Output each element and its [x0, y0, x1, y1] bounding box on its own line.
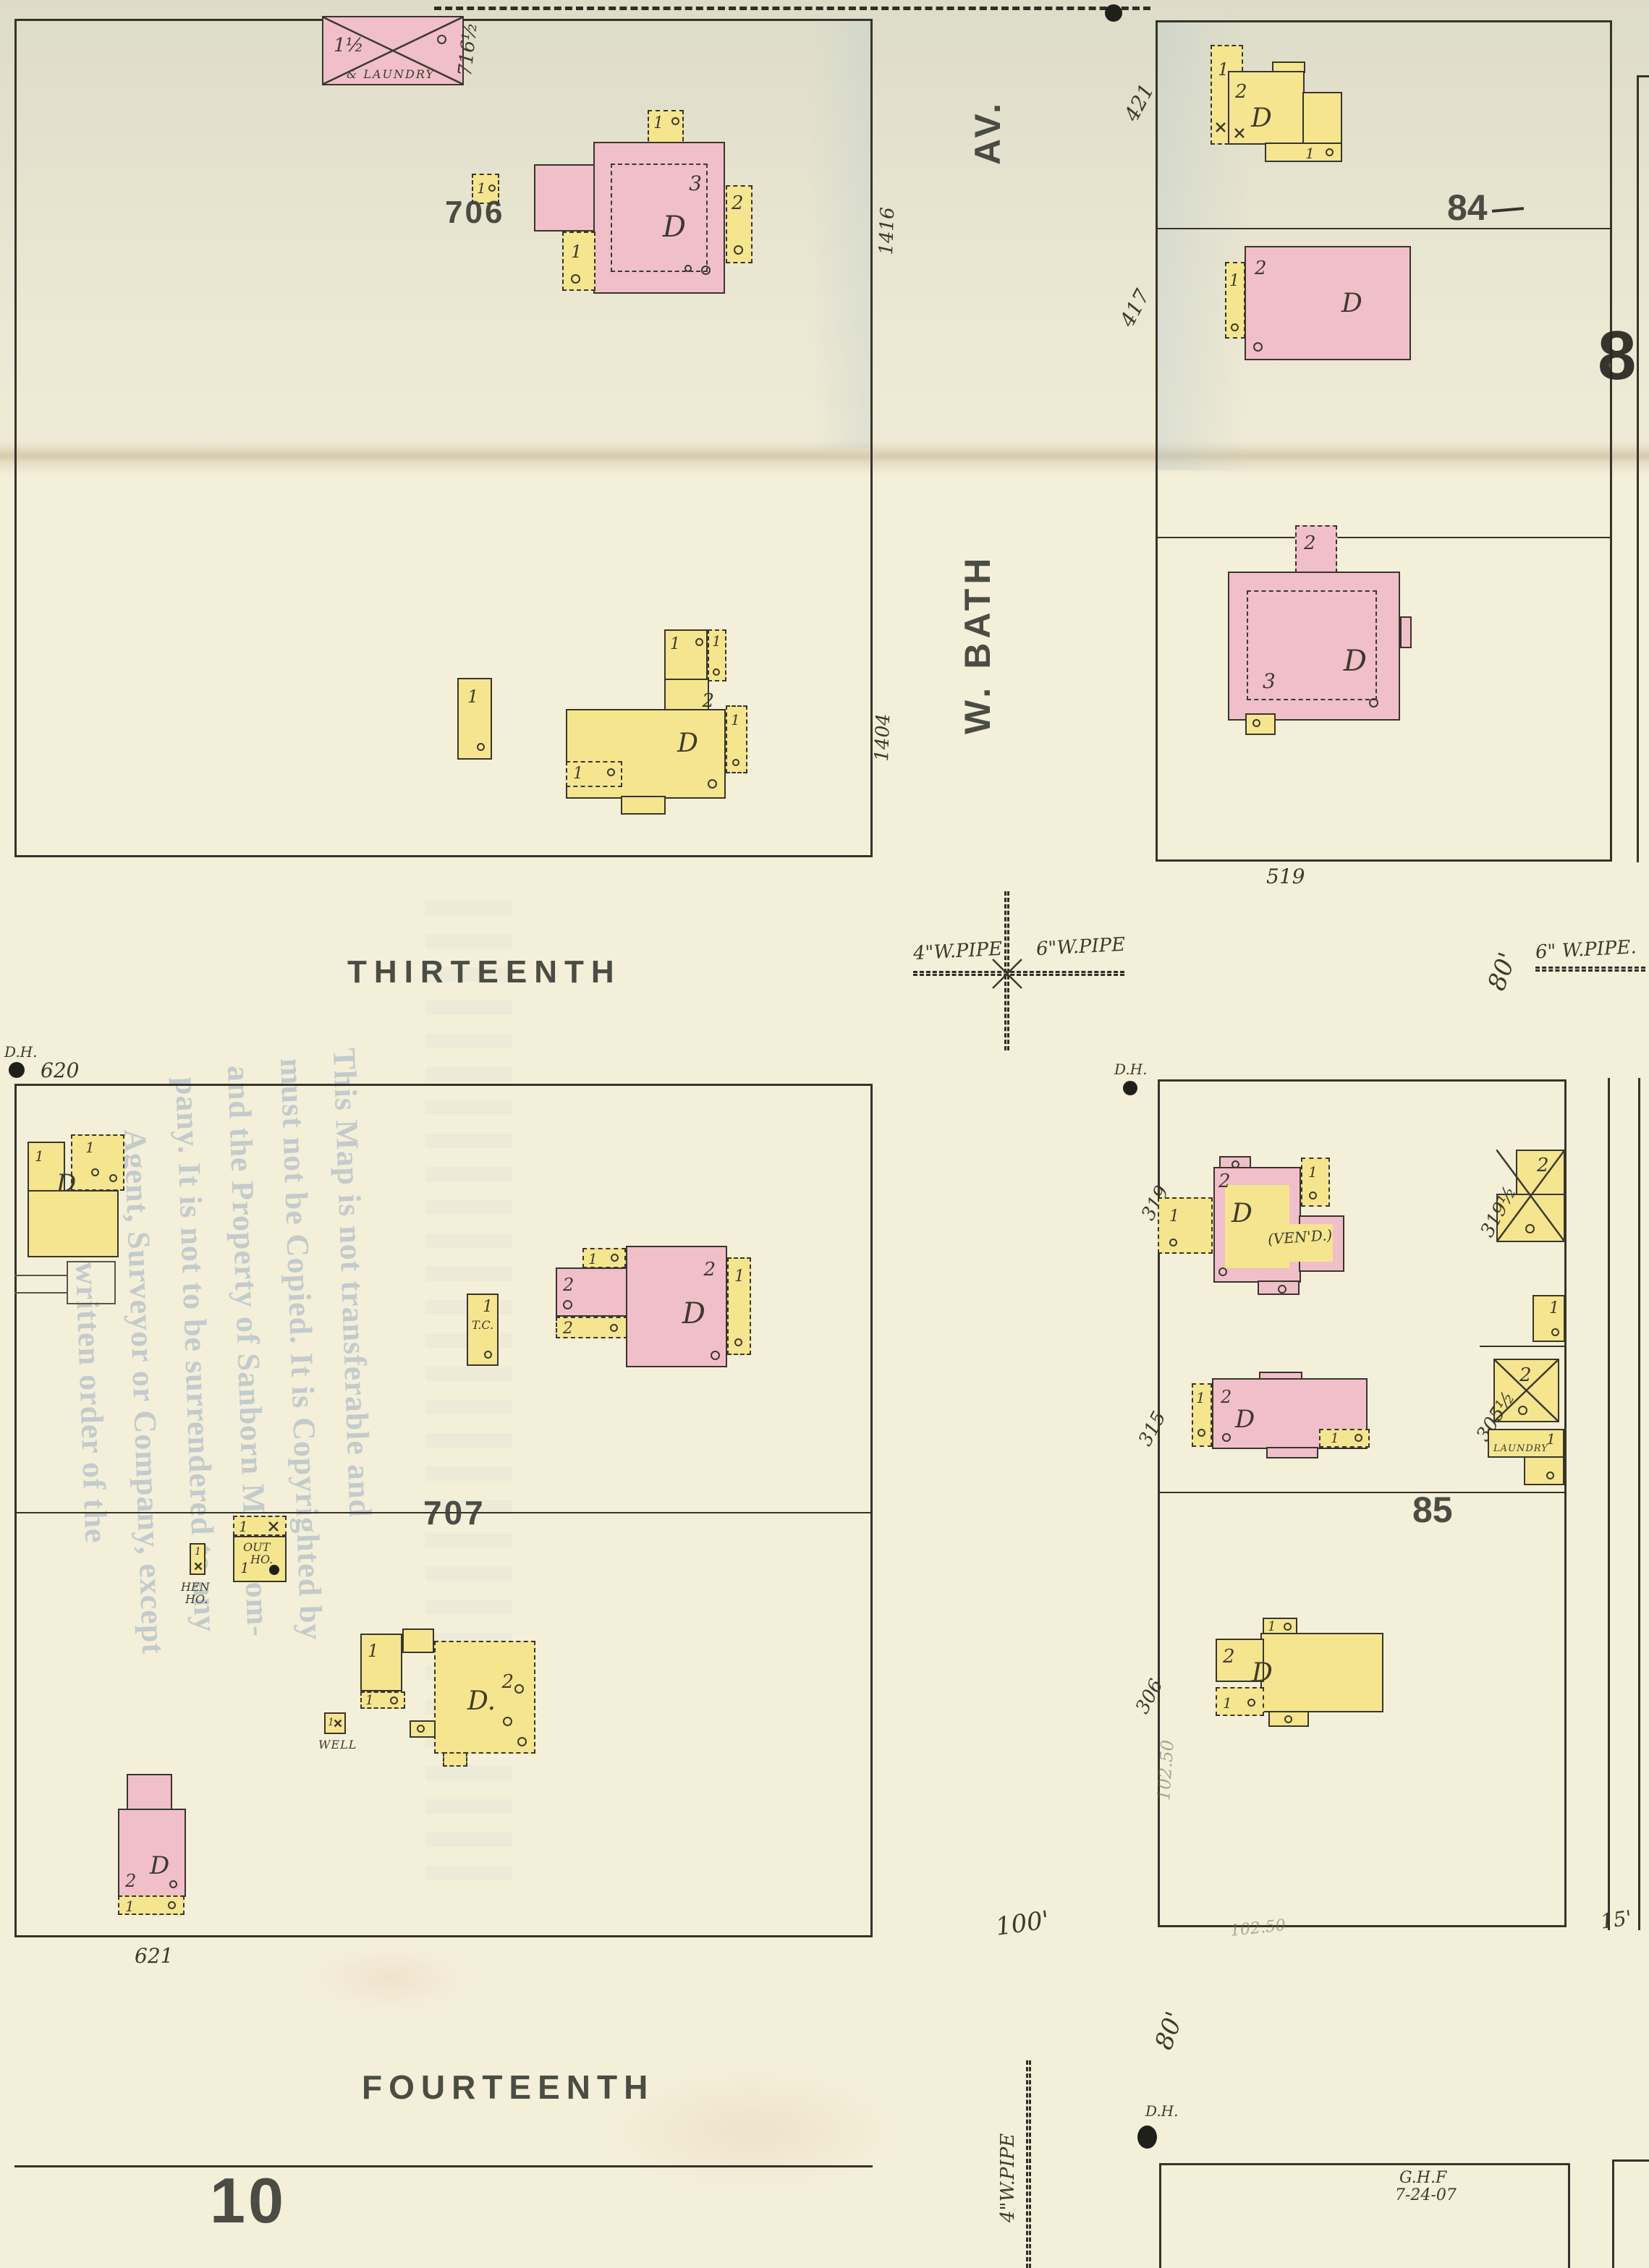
window-circle-icon	[711, 1351, 720, 1360]
house-number: 716½	[456, 17, 480, 77]
porch	[443, 1752, 467, 1767]
window-circle-icon	[610, 1324, 618, 1332]
dwelling-label: D.	[467, 1689, 496, 1715]
window-circle-icon	[1355, 1434, 1362, 1442]
window-circle-icon	[437, 35, 446, 44]
window-circle-icon	[91, 1168, 99, 1176]
story-label: 2	[1304, 534, 1316, 553]
window-circle-icon	[1197, 1429, 1205, 1437]
dwelling-label: D	[1344, 647, 1367, 676]
sheet-number: 8	[1598, 321, 1636, 391]
x-mark-icon	[1234, 127, 1245, 139]
story-label: 1	[670, 637, 680, 653]
pipe-label: 6"W.PIPE	[1035, 935, 1125, 959]
well-label: WELL	[318, 1739, 357, 1751]
porch: 1	[118, 1895, 185, 1915]
story-label: 1	[1229, 273, 1239, 289]
porch: 1	[566, 761, 622, 787]
dwelling-label: D	[1341, 291, 1362, 317]
dwelling-main: D	[27, 1190, 119, 1257]
datum-hole-label: D.H.	[1114, 1062, 1147, 1076]
story-label: 2	[1255, 259, 1267, 278]
window-circle-icon	[1247, 1699, 1255, 1707]
dwelling-main: 2 D.	[434, 1641, 535, 1754]
story-label: 2	[1519, 1366, 1532, 1385]
window-circle-icon	[1284, 1715, 1292, 1723]
window-circle-icon	[169, 1880, 177, 1888]
dwelling-main: 2 D	[1228, 71, 1305, 145]
adjacent-block-edge	[1638, 1078, 1640, 1930]
story-label: 1	[712, 634, 721, 648]
window-circle-icon	[514, 1684, 524, 1694]
porch: 1	[562, 232, 595, 291]
laundry-85-building: 1 LAUNDRY	[1488, 1429, 1564, 1458]
porch: 1	[708, 629, 726, 681]
window-circle-icon	[1326, 148, 1334, 156]
dwelling-extension	[1266, 1447, 1318, 1458]
porch: 1	[1319, 1429, 1370, 1448]
window-circle-icon	[1546, 1471, 1554, 1479]
story-label: 3	[689, 174, 702, 194]
dwelling-bay	[1400, 616, 1412, 648]
story-label: 1	[571, 243, 582, 260]
porch: 1	[726, 705, 747, 773]
outhouse-porch: 1	[233, 1516, 287, 1536]
story-label: 1	[195, 1547, 201, 1557]
adjacent-block-edge-tick	[1637, 75, 1649, 77]
dwelling-label: D	[1235, 1407, 1255, 1432]
window-circle-icon	[607, 768, 615, 776]
window-circle-icon	[708, 779, 717, 789]
window-circle-icon	[1218, 1267, 1227, 1276]
porch: 1	[1216, 1687, 1264, 1716]
porch	[410, 1720, 436, 1738]
dwelling-main: 3 D	[593, 142, 725, 294]
laundry-85-wing	[1524, 1456, 1564, 1485]
dwelling-extension	[621, 796, 666, 815]
street-label-w-bath: W. BATH	[959, 554, 996, 734]
window-circle-icon	[1222, 1433, 1231, 1442]
porch: 2	[726, 185, 753, 263]
story-label: 1	[483, 1299, 493, 1315]
story-label: 1	[85, 1140, 95, 1155]
bottom-corner-block-tick	[1612, 2159, 1649, 2162]
story-label: 1	[1308, 1165, 1318, 1179]
porch: 1	[1225, 262, 1245, 339]
black-dot-marker	[269, 1565, 279, 1575]
x-mark-icon	[194, 1562, 203, 1571]
adjacent-block-edge	[1608, 1078, 1610, 1930]
bottom-corner-block-edge	[1612, 2159, 1614, 2268]
building-use-label: & LAUNDRY	[347, 69, 435, 80]
porch: 1	[582, 1248, 626, 1268]
porch: 1	[727, 1257, 751, 1355]
dwelling-main: D 3	[1228, 572, 1400, 721]
block-number: 84	[1447, 190, 1488, 226]
story-label: 1	[734, 1269, 745, 1285]
story-label: 1	[125, 1899, 135, 1914]
window-circle-icon	[1551, 1328, 1559, 1336]
porch: 1	[1192, 1383, 1212, 1447]
adjacent-block-edge	[1637, 75, 1639, 862]
window-circle-icon	[417, 1725, 425, 1733]
story-label: 2	[702, 692, 714, 710]
dwelling-wing	[1302, 92, 1342, 145]
dwelling-label: D	[677, 731, 698, 757]
window-circle-icon	[484, 1351, 492, 1359]
dimension-label: 100'	[994, 1908, 1051, 1940]
story-label: 2	[732, 194, 744, 213]
dwelling-tower: 2	[1295, 525, 1337, 573]
dwelling-wing	[534, 164, 602, 232]
dwelling-main: D 2	[118, 1809, 186, 1897]
block-number: 706	[445, 197, 504, 229]
story-label: 1	[573, 766, 583, 782]
dimension-label: 15'	[1599, 1908, 1633, 1932]
story-label: 2	[563, 1321, 573, 1337]
block-10-outline	[14, 2165, 873, 2167]
story-label: 1	[1218, 61, 1229, 78]
dimension-label: 80'	[1151, 2008, 1187, 2052]
datum-hole-dot	[1105, 4, 1122, 22]
datum-hole-dot	[9, 1062, 25, 1078]
story-label: 2	[125, 1872, 136, 1890]
pipe-label: 4"W.PIPE	[912, 940, 1002, 963]
building-use-label: T.C.	[472, 1320, 493, 1331]
story-label: 2	[703, 1260, 716, 1279]
story-label: 1	[35, 1149, 44, 1163]
hen-house-building: 1	[190, 1543, 205, 1575]
water-pipe-line	[1535, 967, 1645, 972]
dwelling-label: D	[663, 213, 686, 242]
window-circle-icon	[1232, 1160, 1239, 1168]
dwelling-label: D	[1252, 1660, 1273, 1686]
water-pipe-line	[1026, 2060, 1031, 2268]
block-84-outline	[1156, 20, 1612, 862]
house-number: 1404	[873, 703, 894, 762]
datum-hole-label: D.H.	[4, 1045, 37, 1059]
window-circle-icon	[1278, 1285, 1286, 1294]
window-circle-icon	[1284, 1623, 1292, 1631]
datum-hole-dot	[1137, 2125, 1157, 2149]
x-mark-icon	[268, 1521, 279, 1532]
window-circle-icon	[734, 1338, 742, 1346]
pipe-junction-x-icon	[990, 956, 1025, 991]
dwelling-label: D	[1251, 106, 1272, 132]
window-circle-icon	[1231, 323, 1239, 331]
story-label: 2	[1221, 1388, 1232, 1406]
dwelling-tower	[127, 1774, 172, 1812]
map-edge-dashed-line	[434, 7, 1150, 10]
story-label: 2	[501, 1673, 514, 1691]
window-circle-icon	[390, 1696, 398, 1704]
construction-note: (VEN'D.)	[1267, 1228, 1333, 1246]
window-circle-icon	[713, 668, 720, 676]
dwelling-main	[1260, 1633, 1383, 1712]
street-label-fourteenth: FOURTEENTH	[362, 2070, 654, 2104]
block-number: 707	[423, 1496, 486, 1529]
building-use-label: HO.	[250, 1554, 273, 1566]
window-circle-icon	[1309, 1192, 1317, 1199]
window-circle-icon	[701, 266, 711, 275]
block-85-lot-line	[1158, 1492, 1567, 1493]
block-85-lot-line	[1480, 1346, 1567, 1347]
pipe-label: 6" W.PIPE.	[1535, 938, 1637, 961]
window-circle-icon	[732, 759, 739, 766]
window-circle-icon	[571, 274, 580, 284]
x-mark-icon	[1215, 122, 1226, 133]
story-label: 1	[1549, 1301, 1559, 1317]
street-label-av: AV.	[970, 100, 1006, 165]
window-circle-icon	[477, 743, 485, 751]
dwelling-wing: 2	[556, 1267, 628, 1317]
block-number: 85	[1412, 1492, 1453, 1528]
window-circle-icon	[1369, 698, 1378, 708]
x-mark-icon	[334, 1719, 342, 1728]
survey-date: 7-24-07	[1395, 2188, 1457, 2204]
dwelling-main: 2 D	[1245, 246, 1411, 360]
story-label: 2	[1537, 1156, 1549, 1175]
dwelling-label: D	[682, 1299, 705, 1328]
bottom-right-block-outline	[1159, 2163, 1570, 2268]
story-label: 1	[467, 688, 478, 705]
story-label: 1	[1169, 1209, 1179, 1225]
pencil-note: 102.50	[1229, 1918, 1286, 1940]
datum-hole-dot	[1123, 1081, 1137, 1095]
unfinished-addition-outline	[67, 1261, 116, 1304]
porch	[1245, 713, 1276, 735]
walkway-outline	[14, 1275, 68, 1294]
datum-hole-label: D.H.	[1145, 2104, 1178, 2118]
building-use-label: HO.	[185, 1594, 208, 1605]
block-84-lot-line	[1156, 228, 1612, 229]
house-number: 620	[41, 1061, 79, 1081]
house-number: 621	[135, 1946, 173, 1966]
building-use-label: HEN	[181, 1581, 210, 1593]
story-label: 1	[365, 1694, 373, 1707]
dwelling-label: D	[1232, 1201, 1252, 1227]
dwelling-wing: 1	[664, 629, 708, 680]
window-circle-icon	[563, 1300, 572, 1309]
porch: 1	[1265, 143, 1342, 162]
story-label: 1	[240, 1560, 250, 1575]
story-label: 2	[563, 1276, 574, 1294]
porch: 1	[1301, 1158, 1330, 1207]
paper-stain	[311, 1946, 470, 2011]
story-label: 1	[1331, 1432, 1339, 1445]
porch: 1	[360, 1691, 405, 1709]
window-circle-icon	[109, 1174, 117, 1182]
dwelling-label: D	[56, 1171, 76, 1196]
story-label: 1	[1268, 1621, 1276, 1634]
laundry-building: 1½ & LAUNDRY	[322, 16, 464, 85]
window-circle-icon	[684, 265, 692, 272]
window-circle-icon	[488, 184, 496, 192]
window-circle-icon	[503, 1717, 512, 1726]
trunk-room-building: 1 T.C.	[467, 1294, 499, 1366]
pipe-label: 4"W.PIPE	[999, 2133, 1017, 2222]
window-circle-icon	[695, 638, 703, 646]
window-circle-icon	[1252, 719, 1260, 727]
outhouse-building: OUT HO. 1	[233, 1536, 287, 1582]
window-circle-icon	[611, 1254, 619, 1262]
window-circle-icon	[517, 1737, 527, 1746]
building-use-label: OUT	[243, 1542, 270, 1553]
story-label: 2	[1223, 1647, 1235, 1666]
dwelling-wing: 1	[360, 1634, 402, 1691]
dwelling-annex: 1	[71, 1134, 124, 1191]
building-use-label: LAUNDRY	[1493, 1444, 1548, 1453]
dimension-label: 80'	[1484, 949, 1520, 993]
story-label: 1	[653, 116, 664, 132]
story-label: 1	[731, 713, 740, 727]
block-number: 10	[210, 2169, 287, 2233]
window-circle-icon	[1525, 1224, 1535, 1233]
sanborn-map-sheet: This Map is not transferable and must no…	[0, 0, 1649, 2268]
window-circle-icon	[1253, 342, 1263, 352]
story-label: 1	[1305, 146, 1315, 161]
story-label: 3	[1263, 671, 1276, 692]
window-circle-icon	[168, 1901, 176, 1909]
window-circle-icon	[671, 117, 679, 125]
story-label: 1	[1223, 1696, 1232, 1710]
house-number: 519	[1266, 867, 1305, 887]
house-number: 1416	[877, 197, 898, 255]
porch	[1268, 1711, 1309, 1727]
dwelling-main: 2 D	[626, 1246, 727, 1367]
story-label: 1	[1196, 1390, 1205, 1405]
well-structure: 1	[324, 1712, 346, 1734]
surveyor-initials: G.H.F	[1399, 2170, 1446, 2186]
window-circle-icon	[734, 245, 743, 255]
story-label: 2	[1235, 82, 1247, 101]
block-84-lot-line	[1156, 537, 1612, 538]
story-label: 1	[368, 1642, 378, 1660]
story-label: 1	[239, 1519, 248, 1534]
outbuilding: 1	[457, 678, 492, 760]
street-label-thirteenth: THIRTEENTH	[347, 956, 622, 988]
story-label: 2	[1218, 1172, 1231, 1191]
outbuilding: 1	[1533, 1295, 1565, 1342]
story-label: 1	[588, 1252, 598, 1266]
porch: 2	[556, 1317, 628, 1338]
story-label: 1½	[334, 36, 364, 55]
dwelling-label: D	[150, 1853, 169, 1878]
porch: 1	[1158, 1197, 1213, 1254]
story-label: 1	[477, 181, 486, 195]
window-circle-icon	[1518, 1406, 1527, 1415]
dwelling-tower	[402, 1628, 434, 1653]
window-circle-icon	[1169, 1239, 1177, 1246]
